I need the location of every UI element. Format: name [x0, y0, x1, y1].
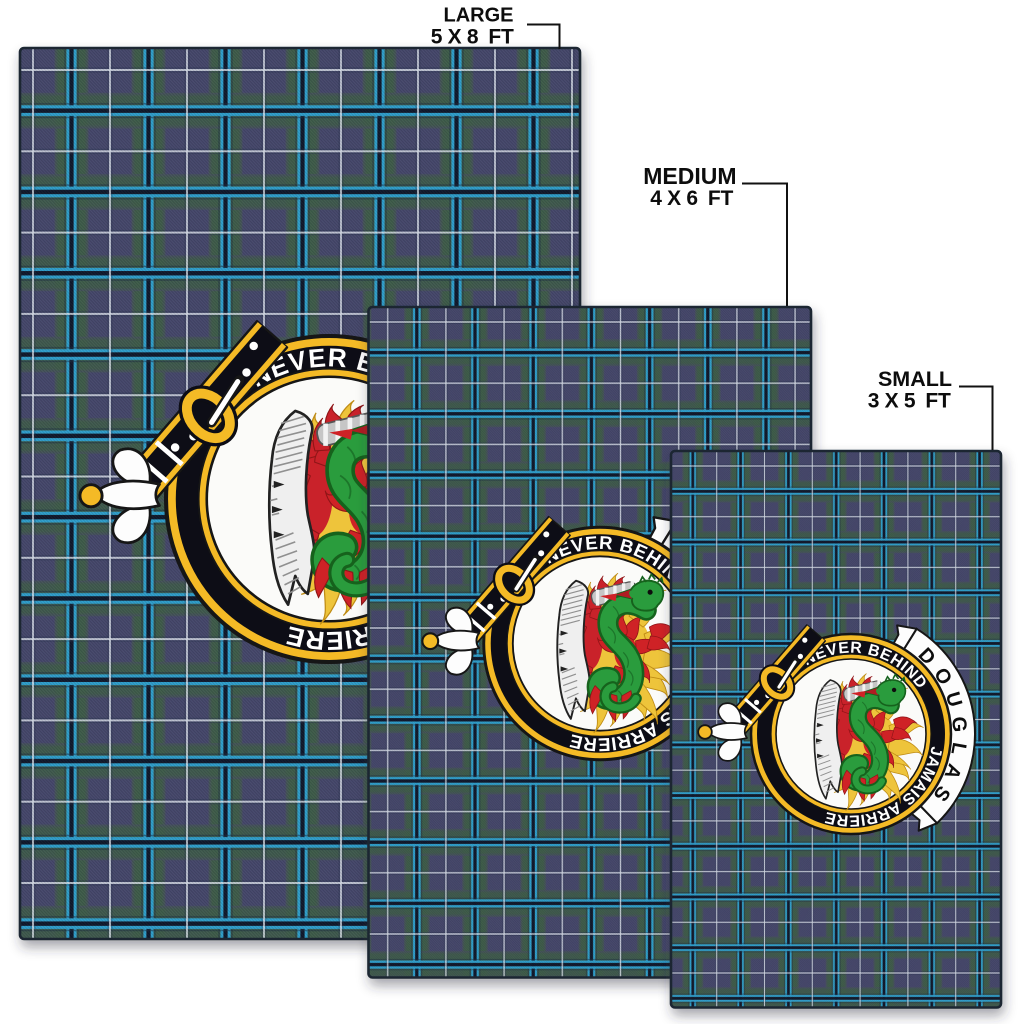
svg-text:LARGE: LARGE — [444, 5, 514, 27]
svg-text:4 X 6 FT: 4 X 6 FT — [650, 187, 733, 210]
svg-text:3 X 5 FT: 3 X 5 FT — [868, 390, 951, 413]
svg-text:MEDIUM: MEDIUM — [643, 163, 736, 189]
svg-text:SMALL: SMALL — [878, 367, 952, 391]
svg-text:5 X 8 FT: 5 X 8 FT — [431, 26, 514, 49]
